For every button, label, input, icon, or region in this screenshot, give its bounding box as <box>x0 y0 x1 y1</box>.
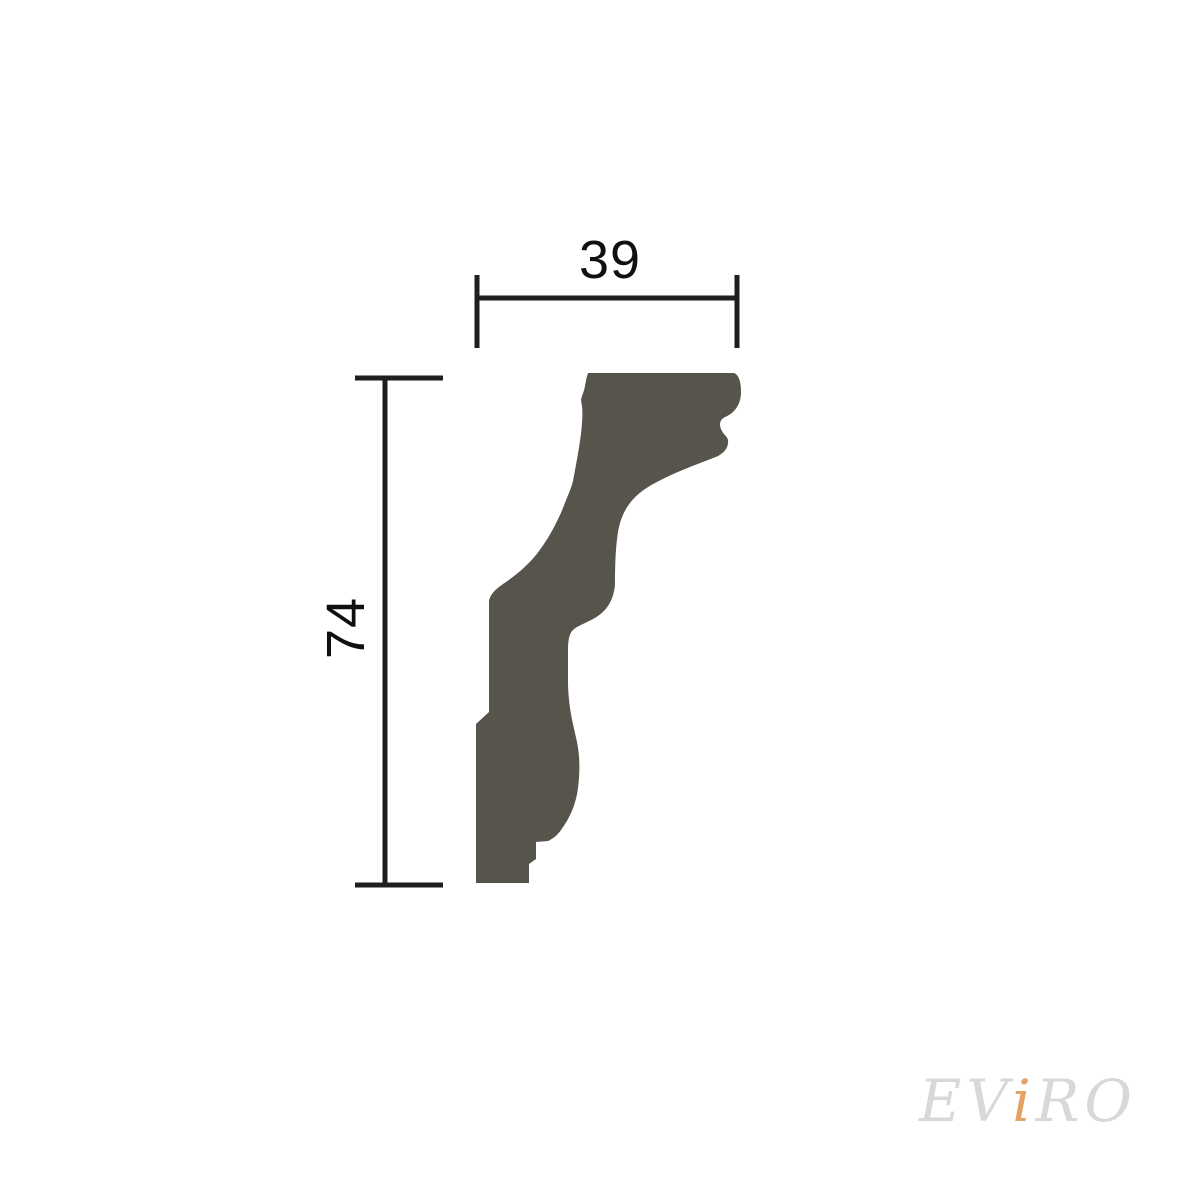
molding-profile-shape <box>476 373 741 883</box>
watermark-text-left: EV <box>919 1067 1012 1135</box>
width-dimension-label: 39 <box>550 230 670 290</box>
watermark-accent-letter: i <box>1012 1067 1036 1135</box>
brand-watermark: EViRO <box>898 1056 1158 1146</box>
drawing-canvas: 39 74 EViRO <box>0 0 1182 1182</box>
technical-drawing <box>0 0 1182 1182</box>
watermark-text-right: RO <box>1036 1067 1137 1135</box>
height-dimension-label: 74 <box>316 568 376 688</box>
